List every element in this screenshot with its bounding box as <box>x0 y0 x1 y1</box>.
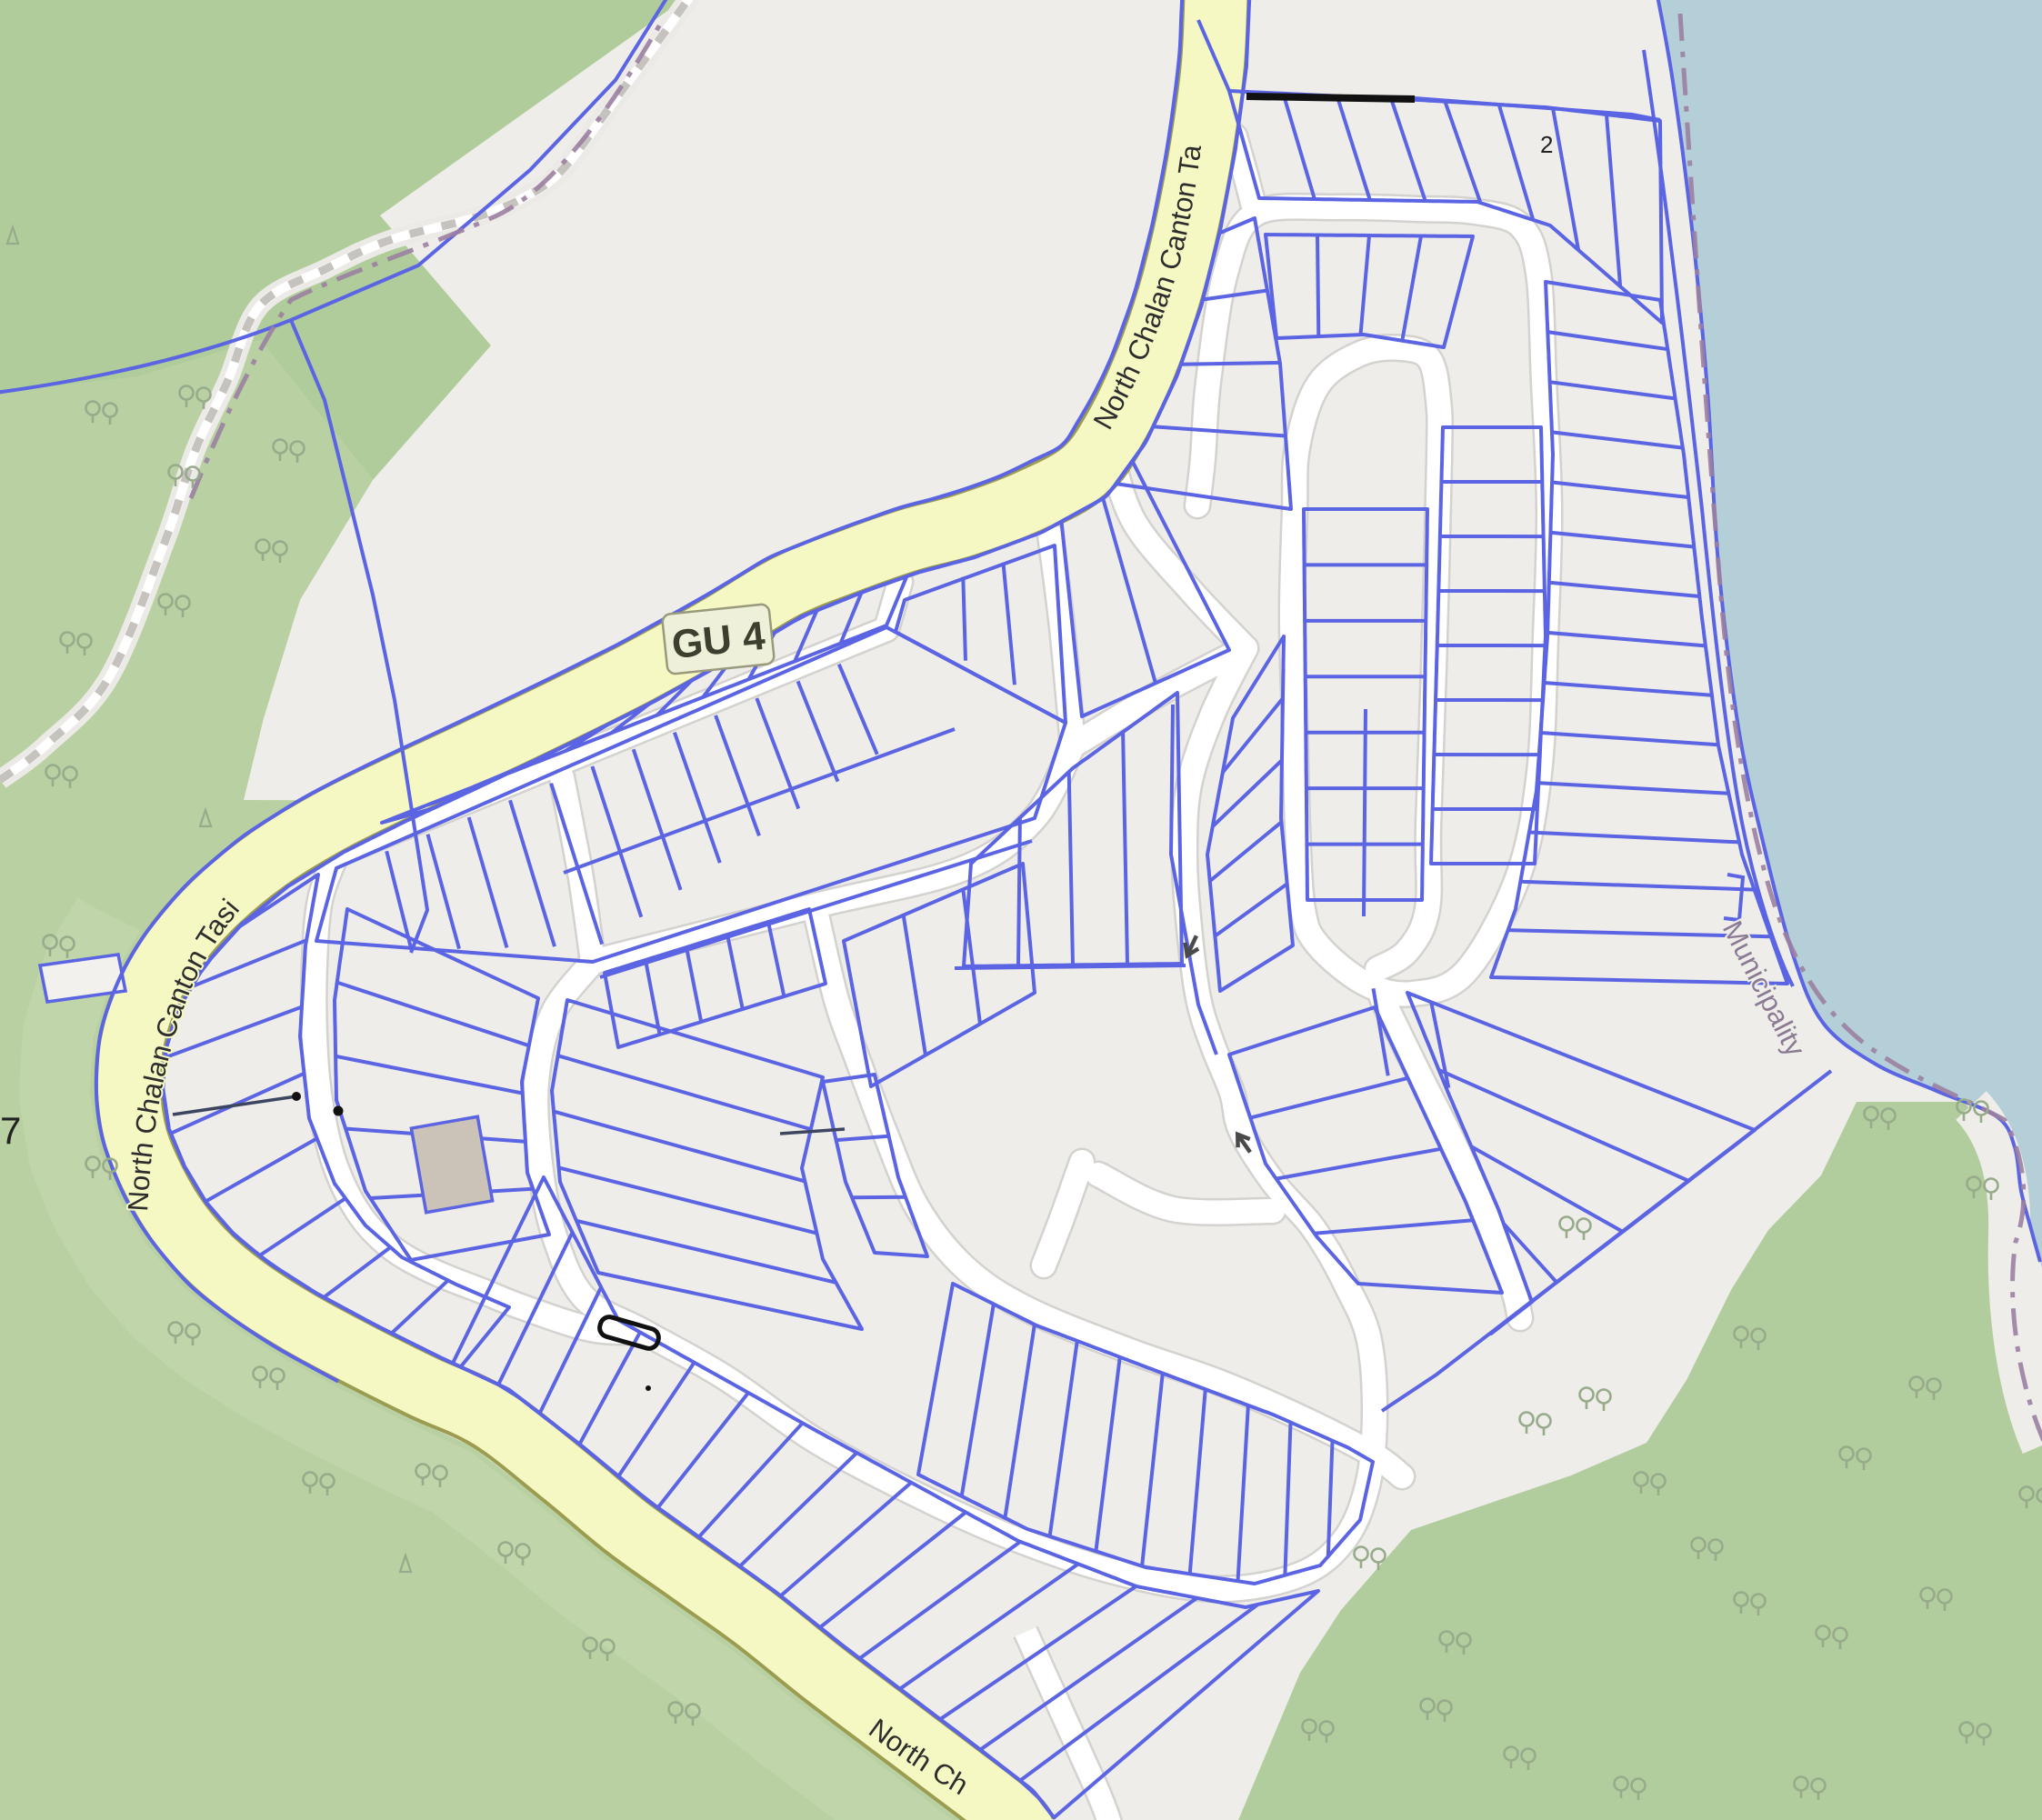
svg-text:2: 2 <box>1540 131 1553 158</box>
svg-text:7: 7 <box>0 1109 21 1152</box>
